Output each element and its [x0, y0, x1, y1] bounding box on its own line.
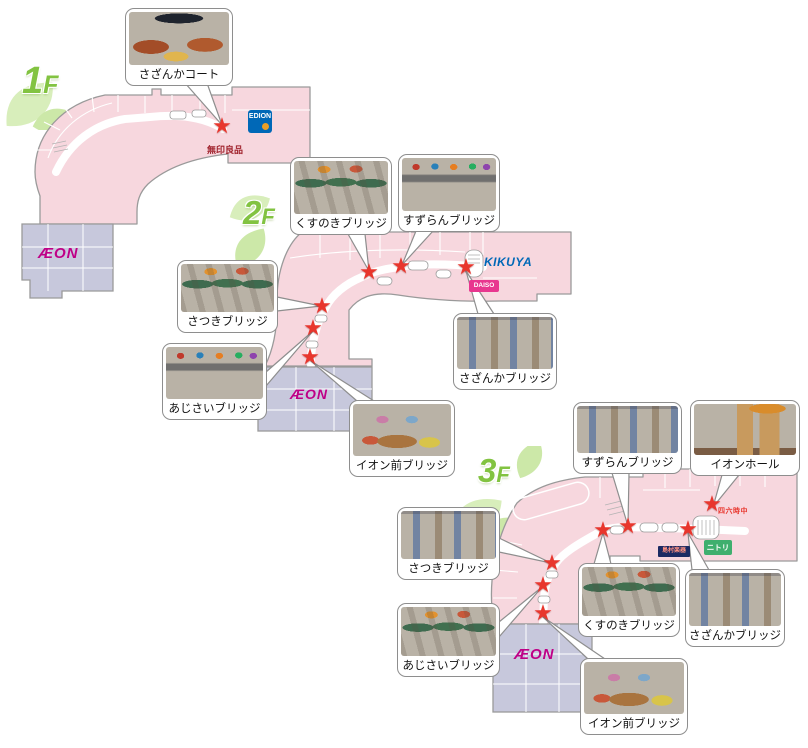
photo-satsuki-bridge-2f — [181, 264, 274, 312]
floor-suffix: F — [261, 204, 274, 229]
photo-suzuran-bridge-2f — [402, 158, 496, 211]
star-marker-ionmae-3f: ★ — [533, 602, 553, 624]
edion-logo: EDION — [248, 110, 272, 133]
photo-callout-kusunoki-3f[interactable]: くすのきブリッジ — [578, 563, 680, 637]
star-marker-ajisai-2f: ★ — [303, 317, 323, 339]
photo-sazanka-bridge-2f — [457, 317, 553, 369]
muji-label: 無印良品 — [202, 143, 248, 156]
photo-caption: さつきブリッジ — [178, 313, 277, 331]
photo-sazanka-bridge-3f — [689, 573, 781, 626]
photo-callout-suzuran-2f[interactable]: すずらんブリッジ — [398, 154, 500, 232]
photo-caption: イオン前ブリッジ — [350, 457, 454, 475]
star-marker-ajisai-3f: ★ — [533, 574, 553, 596]
photo-sazanka-court — [129, 12, 229, 65]
photo-caption: イオンホール — [691, 456, 799, 474]
photo-caption: あじさいブリッジ — [398, 657, 499, 675]
star-marker-sazanka-court-1f: ★ — [212, 115, 232, 137]
star-marker-kusunoki-3f: ★ — [593, 519, 613, 541]
floor-suffix: F — [43, 71, 58, 99]
photo-callout-sazanka-court-1f[interactable]: さざんかコート — [125, 8, 233, 86]
photo-caption: すずらんブリッジ — [574, 454, 681, 472]
floor-number: 1 — [22, 60, 43, 102]
star-marker-sazanka-3f: ★ — [678, 518, 698, 540]
floor-label-1f: 1F — [22, 60, 58, 103]
floor-label-3f: 3F — [478, 452, 510, 490]
restaurant-red-label: 四六時中 — [718, 506, 748, 516]
star-marker-ion-hall-3f: ★ — [702, 493, 722, 515]
aeon-wordmark-3f: ÆON — [514, 646, 555, 663]
photo-caption: さつきブリッジ — [398, 560, 499, 578]
star-marker-satsuki-3f: ★ — [542, 552, 562, 574]
photo-caption: さざんかブリッジ — [454, 370, 556, 388]
mall-floor-guide-map: 1F 2F 3F — [0, 0, 808, 748]
shimamura-gakki-logo: 島村楽器 — [658, 546, 690, 557]
photo-ajisai-bridge-3f — [401, 607, 496, 656]
floor-label-2f: 2F — [243, 194, 275, 232]
photo-callout-satsuki-2f[interactable]: さつきブリッジ — [177, 260, 278, 333]
star-marker-sazanka-2f: ★ — [456, 256, 476, 278]
aeon-wordmark-1f: ÆON — [38, 245, 79, 262]
photo-ion-hall-3f — [694, 404, 796, 455]
photo-kusunoki-bridge-2f — [294, 161, 388, 214]
photo-caption: すずらんブリッジ — [399, 212, 499, 230]
photo-callout-sazanka-2f[interactable]: さざんかブリッジ — [453, 313, 557, 390]
floor-number: 2 — [243, 194, 261, 231]
photo-callout-kusunoki-2f[interactable]: くすのきブリッジ — [290, 157, 392, 235]
photo-caption: あじさいブリッジ — [163, 400, 266, 418]
photo-caption: さざんかコート — [126, 66, 232, 84]
photo-callout-suzuran-3f[interactable]: すずらんブリッジ — [573, 402, 682, 474]
aeon-store-area-3f — [493, 624, 592, 712]
star-marker-suzuran-3f: ★ — [618, 515, 638, 537]
kikuya-logo: KIKUYA — [484, 255, 532, 269]
photo-callout-satsuki-3f[interactable]: さつきブリッジ — [397, 507, 500, 580]
photo-callout-sazanka-3f[interactable]: さざんかブリッジ — [685, 569, 785, 647]
daiso-logo: DAISO — [469, 280, 499, 292]
photo-callout-ionmae-2f[interactable]: イオン前ブリッジ — [349, 400, 455, 477]
photo-caption: イオン前ブリッジ — [581, 715, 687, 733]
floor-suffix: F — [496, 462, 509, 487]
photo-ionmae-bridge-2f — [353, 404, 451, 456]
star-marker-suzuran-2f: ★ — [391, 255, 411, 277]
photo-kusunoki-bridge-3f — [582, 567, 676, 616]
star-marker-kusunoki-2f: ★ — [359, 261, 379, 283]
photo-caption: くすのきブリッジ — [579, 617, 679, 635]
floor-number: 3 — [478, 452, 496, 489]
photo-ionmae-bridge-3f — [584, 662, 684, 714]
photo-callout-ajisai-2f[interactable]: あじさいブリッジ — [162, 343, 267, 420]
photo-caption: くすのきブリッジ — [291, 215, 391, 233]
photo-ajisai-bridge-2f — [166, 347, 263, 399]
photo-caption: さざんかブリッジ — [686, 627, 784, 645]
nitori-logo: ニトリ — [704, 540, 732, 555]
star-marker-satsuki-2f: ★ — [312, 295, 332, 317]
photo-callout-ion-hall-3f[interactable]: イオンホール — [690, 400, 800, 476]
star-marker-ionmae-2f: ★ — [300, 346, 320, 368]
photo-suzuran-bridge-3f — [577, 406, 678, 453]
photo-callout-ajisai-3f[interactable]: あじさいブリッジ — [397, 603, 500, 677]
photo-callout-ionmae-3f[interactable]: イオン前ブリッジ — [580, 658, 688, 735]
aeon-wordmark-2f: ÆON — [290, 386, 328, 402]
photo-satsuki-bridge-3f — [401, 511, 496, 559]
